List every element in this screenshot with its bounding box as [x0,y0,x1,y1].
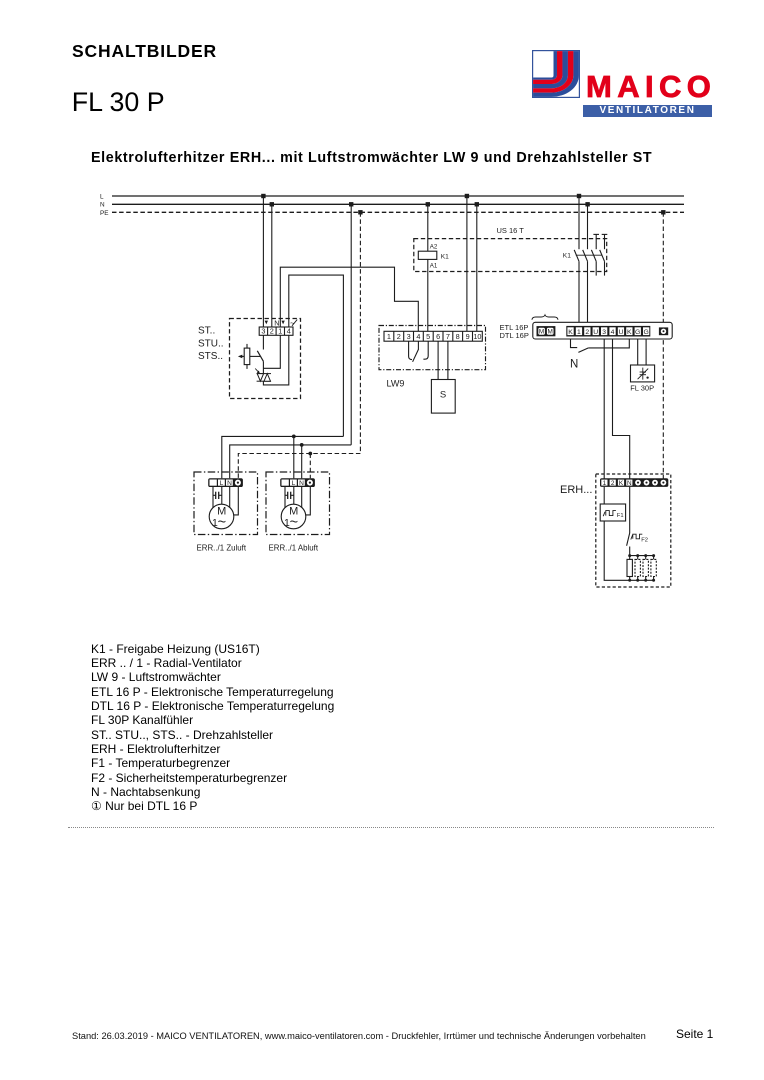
svg-text:M: M [539,329,544,336]
svg-text:ST..: ST.. [198,326,215,337]
svg-text:M: M [548,329,553,336]
svg-text:N: N [100,202,105,209]
svg-text:PE: PE [100,210,109,217]
svg-text:K1: K1 [563,253,571,260]
svg-text:3: 3 [407,332,411,341]
svg-text:FL 30P: FL 30P [630,383,654,392]
svg-text:F1: F1 [617,513,624,519]
svg-text:S: S [440,390,446,401]
svg-text:DTL 16P: DTL 16P [500,331,529,340]
svg-text:N: N [274,319,279,328]
svg-text:2: 2 [611,480,615,487]
svg-text:F2: F2 [641,538,648,544]
svg-text:N: N [227,480,232,487]
svg-text:4: 4 [287,327,291,336]
svg-text:5: 5 [426,332,430,341]
svg-text:K: K [619,480,624,487]
svg-text:~: ~ [218,514,226,530]
svg-text:K: K [568,329,573,336]
svg-text:9: 9 [466,332,470,341]
svg-text:N: N [627,480,632,487]
svg-text:4: 4 [611,329,615,336]
svg-text:A2: A2 [430,244,438,251]
svg-text:L: L [100,193,104,200]
svg-text:1: 1 [278,327,282,336]
svg-text:G: G [635,329,640,336]
svg-text:1: 1 [577,329,581,336]
svg-text:ERR../1 Zuluft: ERR../1 Zuluft [197,544,247,553]
svg-text:6: 6 [436,332,440,341]
svg-text:7: 7 [446,332,450,341]
svg-text:ERR../1 Abluft: ERR../1 Abluft [269,544,319,553]
svg-text:2: 2 [270,327,274,336]
svg-text:L: L [292,480,296,487]
svg-text:N: N [570,359,578,371]
svg-text:8: 8 [456,332,460,341]
svg-text:U: U [618,329,623,336]
svg-text:ERH...: ERH... [560,484,592,496]
svg-text:G: G [643,329,648,336]
svg-text:N: N [299,480,304,487]
svg-text:1: 1 [603,480,607,487]
svg-text:A1: A1 [430,262,438,269]
svg-text:U: U [593,329,598,336]
svg-text:10: 10 [473,332,481,341]
svg-text:2: 2 [585,329,589,336]
svg-text:L: L [220,480,224,487]
svg-text:~: ~ [290,514,298,530]
svg-text:STU..: STU.. [198,338,224,349]
svg-text:K1: K1 [441,253,449,260]
svg-text:4: 4 [416,332,420,341]
svg-text:3: 3 [602,329,606,336]
svg-text:1: 1 [387,332,391,341]
svg-text:3: 3 [261,327,265,336]
svg-text:US 16 T: US 16 T [497,226,525,235]
svg-text:STS..: STS.. [198,351,223,362]
svg-text:K: K [627,329,632,336]
svg-text:LW9: LW9 [387,378,405,388]
svg-text:2: 2 [397,332,401,341]
